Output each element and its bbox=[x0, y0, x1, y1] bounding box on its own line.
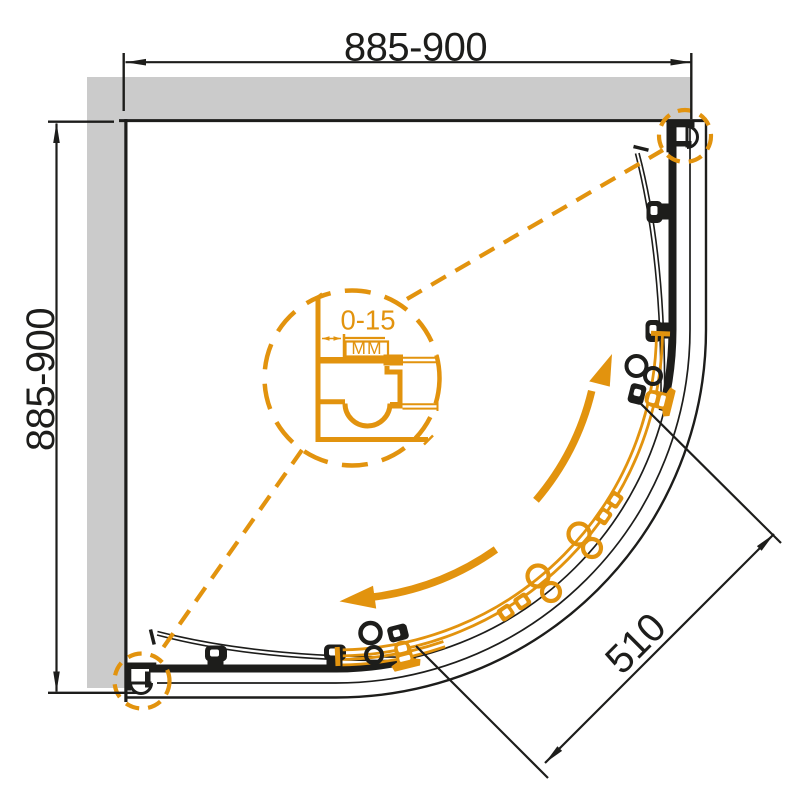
svg-text:885-900: 885-900 bbox=[19, 308, 63, 451]
svg-text:885-900: 885-900 bbox=[344, 26, 487, 70]
svg-text:510: 510 bbox=[597, 605, 674, 682]
svg-text:0-15: 0-15 bbox=[340, 305, 395, 336]
svg-text:MM: MM bbox=[351, 338, 382, 358]
